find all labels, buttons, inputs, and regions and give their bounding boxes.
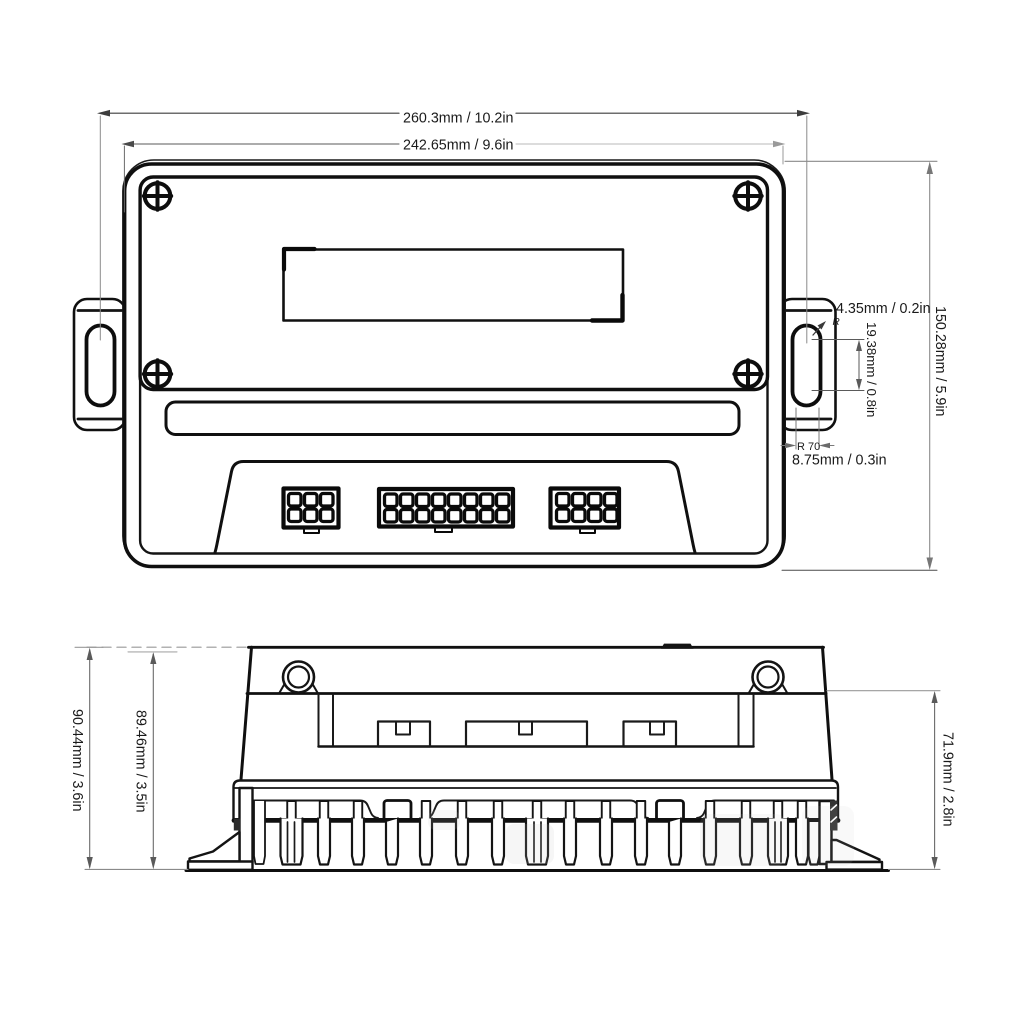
svg-text:R 70: R 70 (797, 441, 820, 453)
svg-text:90.44mm / 3.6in: 90.44mm / 3.6in (69, 709, 85, 812)
svg-text:242.65mm / 9.6in: 242.65mm / 9.6in (403, 138, 514, 154)
svg-text:150.28mm / 5.9in: 150.28mm / 5.9in (932, 306, 948, 417)
svg-text:4.35mm / 0.2in: 4.35mm / 0.2in (836, 301, 931, 317)
svg-text:19.38mm / 0.8in: 19.38mm / 0.8in (864, 322, 879, 417)
svg-text:260.3mm / 10.2in: 260.3mm / 10.2in (403, 111, 514, 127)
svg-text:8.75mm / 0.3in: 8.75mm / 0.3in (792, 453, 887, 469)
svg-text:89.46mm / 3.5in: 89.46mm / 3.5in (133, 710, 149, 813)
svg-text:R: R (833, 317, 840, 328)
svg-text:71.9mm / 2.8in: 71.9mm / 2.8in (940, 732, 956, 827)
